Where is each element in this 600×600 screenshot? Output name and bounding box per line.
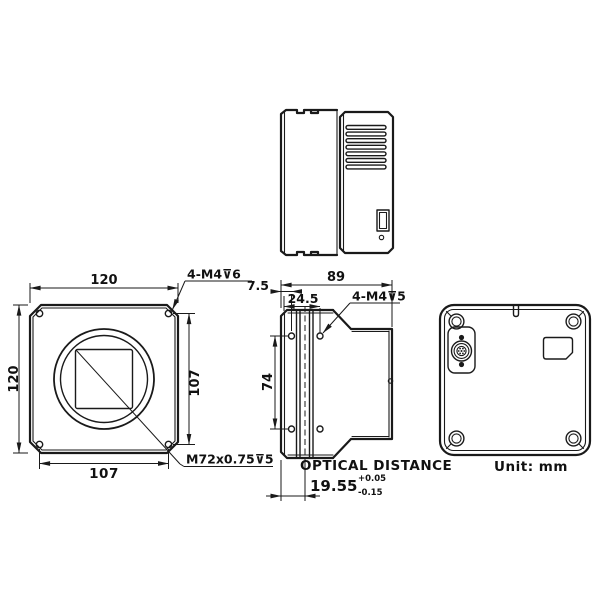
optical-distance-label: OPTICAL DISTANCE [300,458,452,474]
back-top-slot [514,306,519,317]
side-view-flange-outline [281,310,333,458]
unit-note: Unit: mm [494,459,568,475]
side-view-dimensions: 89 7.5 24.5 74 4-M4⊽5 OPTICAL DISTANCE 1… [247,270,452,501]
power-io-connector [452,341,472,361]
vent-grille [346,126,386,169]
panel-screw-top [459,335,464,340]
note-side-thread: 4-M4⊽5 [352,289,406,304]
dimension-drawing-page: 120 120 107 107 4-M4⊽6 M72x0.75⊽5 [0,0,600,600]
top-view-switch [377,210,389,231]
dim-side-depth: 89 [327,270,345,285]
side-hole-front-bottom [289,426,295,432]
dim-front-hole-spacing-vertical: 107 [188,369,203,396]
panel-screw-bottom [459,362,464,367]
optical-distance-tol-plus: +0.05 [358,474,386,484]
sensor-diagonal-leader [76,350,180,464]
optical-distance-tol-minus: -0.15 [358,488,383,498]
top-view-flange-outline [281,110,337,255]
side-hole-rear-top [317,333,323,339]
camera-dimension-drawing: 120 120 107 107 4-M4⊽6 M72x0.75⊽5 [0,0,600,600]
dim-side-hole-offset: 24.5 [288,291,319,306]
note-lens-mount-thread: M72x0.75⊽5 [186,452,274,467]
front-view [30,305,180,464]
back-view: Unit: mm [440,305,590,475]
side-hole-rear-bottom [317,426,323,432]
note-front-corner-thread: 4-M4⊽6 [187,267,241,282]
dim-front-width: 120 [90,273,117,288]
lens-mount-inner-circle [61,336,148,423]
side-view-body-outline [333,310,392,458]
side-hole-front-top [289,333,295,339]
lens-mount-outer-circle [54,329,154,429]
top-view [281,110,393,255]
dim-side-front-offset: 7.5 [247,278,269,293]
dim-front-height: 120 [7,365,22,392]
dim-front-hole-spacing-horizontal: 107 [89,466,119,482]
dim-side-hole-spacing: 74 [261,373,276,391]
side-view [281,306,393,461]
front-view-outline [30,305,178,453]
top-view-switch-inner [380,213,387,229]
optical-distance-value: 19.55 [310,477,357,495]
back-view-inner-outline [445,310,586,451]
back-corner-screws [447,312,584,449]
top-view-hole [379,235,383,239]
back-label-plate [544,338,573,360]
